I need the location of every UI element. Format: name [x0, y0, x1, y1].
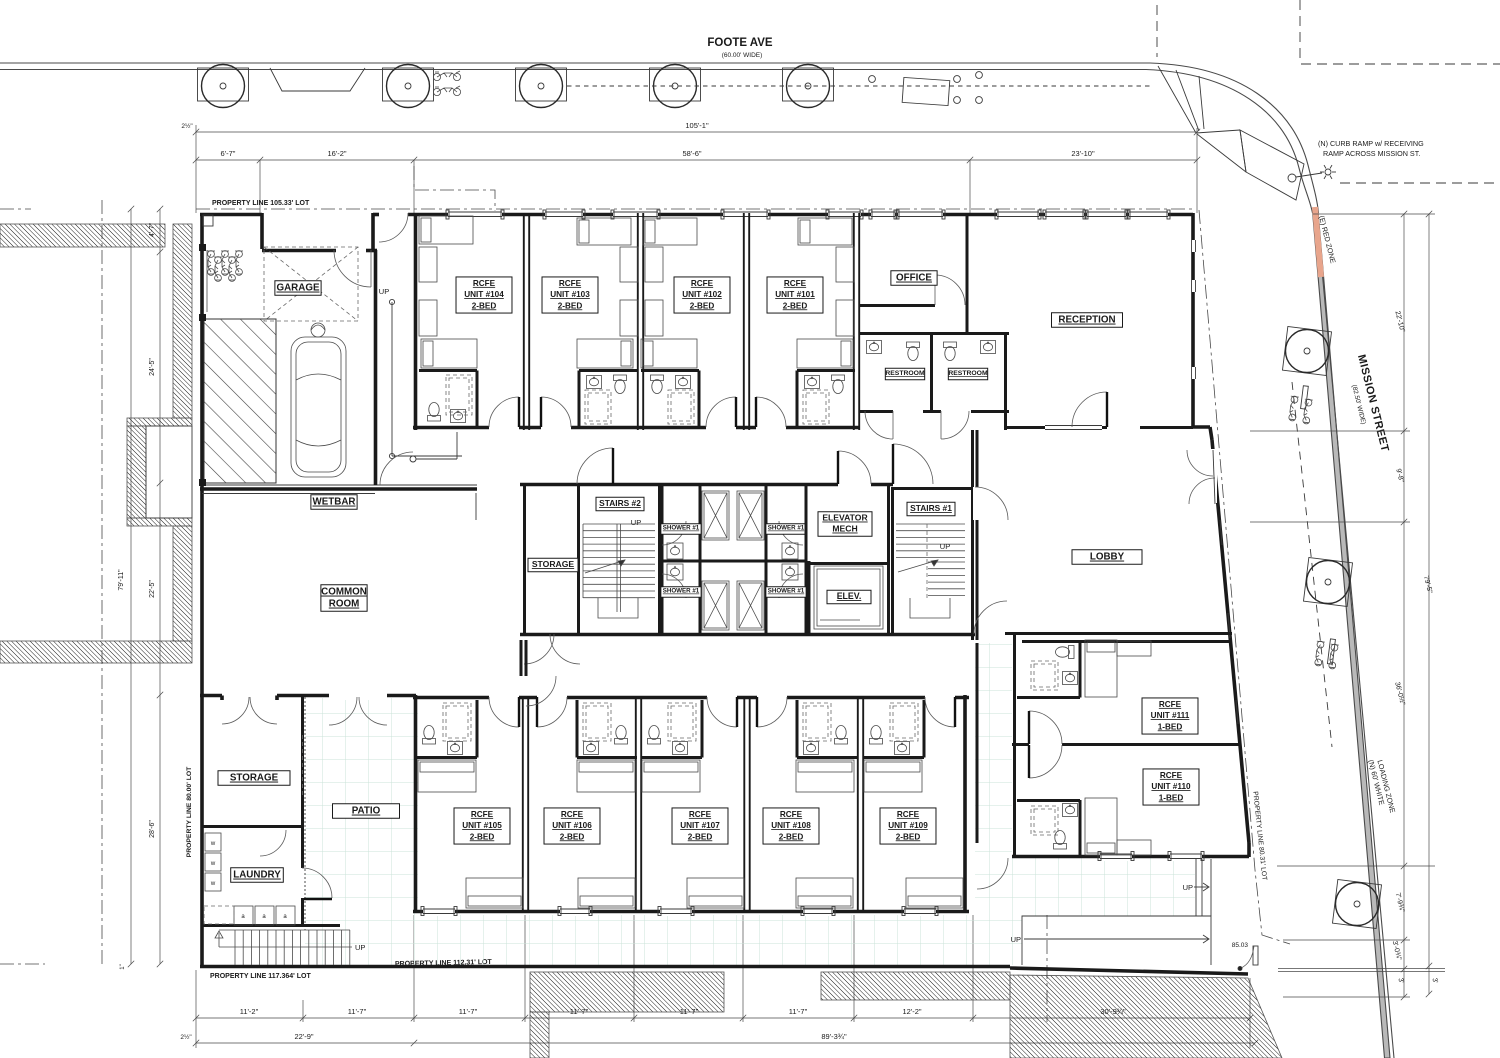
svg-text:2-BED: 2-BED [779, 832, 804, 841]
svg-text:(N) CURB RAMP w/ RECEIVING: (N) CURB RAMP w/ RECEIVING [1318, 139, 1424, 148]
svg-text:RCFE: RCFE [897, 810, 920, 819]
svg-text:12'-2": 12'-2" [902, 1007, 921, 1016]
svg-text:UNIT #109: UNIT #109 [888, 821, 928, 830]
svg-text:58'-6": 58'-6" [682, 149, 701, 158]
svg-text:PROPERTY LINE 117.364' LOT: PROPERTY LINE 117.364' LOT [210, 973, 311, 980]
svg-text:2-BED: 2-BED [470, 832, 495, 841]
svg-text:1-BED: 1-BED [1159, 793, 1184, 802]
svg-text:85.03: 85.03 [1232, 942, 1249, 949]
svg-text:PROPERTY LINE 80.00' LOT: PROPERTY LINE 80.00' LOT [186, 766, 193, 857]
svg-text:79'-11": 79'-11" [118, 569, 125, 591]
svg-text:PATIO: PATIO [352, 806, 381, 817]
svg-text:11'-7": 11'-7" [459, 1007, 478, 1016]
svg-text:UNIT #110: UNIT #110 [1151, 782, 1191, 791]
svg-text:STAIRS #2: STAIRS #2 [599, 498, 641, 508]
svg-text:ELEV.: ELEV. [837, 591, 862, 601]
svg-text:STORAGE: STORAGE [532, 559, 575, 569]
svg-text:GARAGE: GARAGE [276, 283, 319, 294]
svg-text:RCFE: RCFE [473, 279, 496, 288]
svg-text:SHOWER #1: SHOWER #1 [768, 588, 805, 595]
svg-text:w: w [210, 861, 216, 867]
svg-text:UNIT #102: UNIT #102 [682, 290, 722, 299]
svg-text:2-BED: 2-BED [690, 301, 715, 310]
svg-text:FOOTE AVE: FOOTE AVE [707, 37, 773, 49]
svg-text:11'-2": 11'-2" [240, 1007, 259, 1016]
svg-text:STORAGE: STORAGE [230, 773, 279, 784]
svg-text:WETBAR: WETBAR [313, 497, 356, 508]
svg-text:UNIT #107: UNIT #107 [680, 821, 720, 830]
svg-text:ELEVATOR: ELEVATOR [822, 513, 868, 523]
svg-text:2-BED: 2-BED [688, 832, 713, 841]
svg-text:RAMP ACROSS MISSION ST.: RAMP ACROSS MISSION ST. [1323, 149, 1420, 158]
svg-text:RESTROOM: RESTROOM [948, 370, 988, 377]
svg-text:105'-1": 105'-1" [685, 121, 709, 130]
svg-text:RESTROOM: RESTROOM [885, 370, 925, 377]
svg-text:LOBBY: LOBBY [1090, 552, 1125, 563]
svg-text:1-BED: 1-BED [1158, 722, 1183, 731]
svg-text:16'-2": 16'-2" [327, 149, 346, 158]
svg-text:STAIRS #1: STAIRS #1 [910, 503, 952, 513]
svg-text:ROOM: ROOM [329, 599, 359, 610]
svg-text:2-BED: 2-BED [472, 301, 497, 310]
svg-text:22'-5": 22'-5" [149, 580, 156, 598]
svg-text:UP: UP [1011, 935, 1021, 944]
svg-text:2-BED: 2-BED [558, 301, 583, 310]
svg-text:RCFE: RCFE [1159, 700, 1182, 709]
svg-text:MECH: MECH [832, 524, 857, 534]
svg-text:w: w [210, 841, 216, 847]
svg-text:OFFICE: OFFICE [896, 273, 932, 284]
svg-text:4'-7": 4'-7" [149, 223, 156, 237]
svg-text:w: w [210, 881, 216, 887]
svg-text:UNIT #104: UNIT #104 [464, 290, 504, 299]
svg-text:28'-6": 28'-6" [149, 820, 156, 838]
svg-text:RCFE: RCFE [689, 810, 712, 819]
svg-text:89'-3¾": 89'-3¾" [821, 1032, 847, 1041]
svg-text:SHOWER #1: SHOWER #1 [768, 525, 805, 532]
svg-text:RECEPTION: RECEPTION [1058, 315, 1115, 326]
svg-text:UP: UP [940, 542, 950, 551]
svg-text:PROPERTY LINE 105.33' LOT: PROPERTY LINE 105.33' LOT [212, 200, 310, 207]
svg-text:UP: UP [1183, 883, 1193, 892]
svg-text:RCFE: RCFE [1160, 771, 1183, 780]
svg-text:UP: UP [631, 518, 641, 527]
svg-text:RCFE: RCFE [691, 279, 714, 288]
svg-text:LAUNDRY: LAUNDRY [233, 870, 281, 881]
svg-text:2-BED: 2-BED [783, 301, 808, 310]
svg-text:2½": 2½" [180, 1033, 192, 1041]
svg-text:UNIT #103: UNIT #103 [550, 290, 590, 299]
svg-text:UNIT #108: UNIT #108 [771, 821, 811, 830]
svg-text:UNIT #101: UNIT #101 [775, 290, 815, 299]
svg-text:1": 1" [120, 964, 126, 969]
svg-text:23'-10": 23'-10" [1071, 149, 1095, 158]
svg-text:UNIT #111: UNIT #111 [1151, 711, 1190, 720]
svg-text:RCFE: RCFE [784, 279, 807, 288]
svg-text:SHOWER #1: SHOWER #1 [663, 525, 700, 532]
svg-text:2½": 2½" [181, 122, 193, 130]
svg-text:2-BED: 2-BED [896, 832, 921, 841]
svg-text:24'-5": 24'-5" [149, 358, 156, 376]
svg-text:22'-9": 22'-9" [294, 1032, 313, 1041]
svg-text:UNIT #105: UNIT #105 [462, 821, 502, 830]
svg-text:UP: UP [355, 943, 365, 952]
svg-text:RCFE: RCFE [559, 279, 582, 288]
svg-text:6'-7": 6'-7" [221, 149, 236, 158]
svg-text:SHOWER #1: SHOWER #1 [663, 588, 700, 595]
svg-text:2-BED: 2-BED [560, 832, 585, 841]
svg-text:UNIT #106: UNIT #106 [552, 821, 592, 830]
svg-text:11'-7": 11'-7" [789, 1007, 808, 1016]
svg-text:11'-7": 11'-7" [348, 1007, 367, 1016]
svg-text:UP: UP [379, 287, 389, 296]
svg-text:RCFE: RCFE [561, 810, 584, 819]
svg-text:RCFE: RCFE [471, 810, 494, 819]
svg-text:(60.00' WIDE): (60.00' WIDE) [722, 52, 763, 59]
svg-text:RCFE: RCFE [780, 810, 803, 819]
svg-text:COMMON: COMMON [321, 587, 367, 598]
